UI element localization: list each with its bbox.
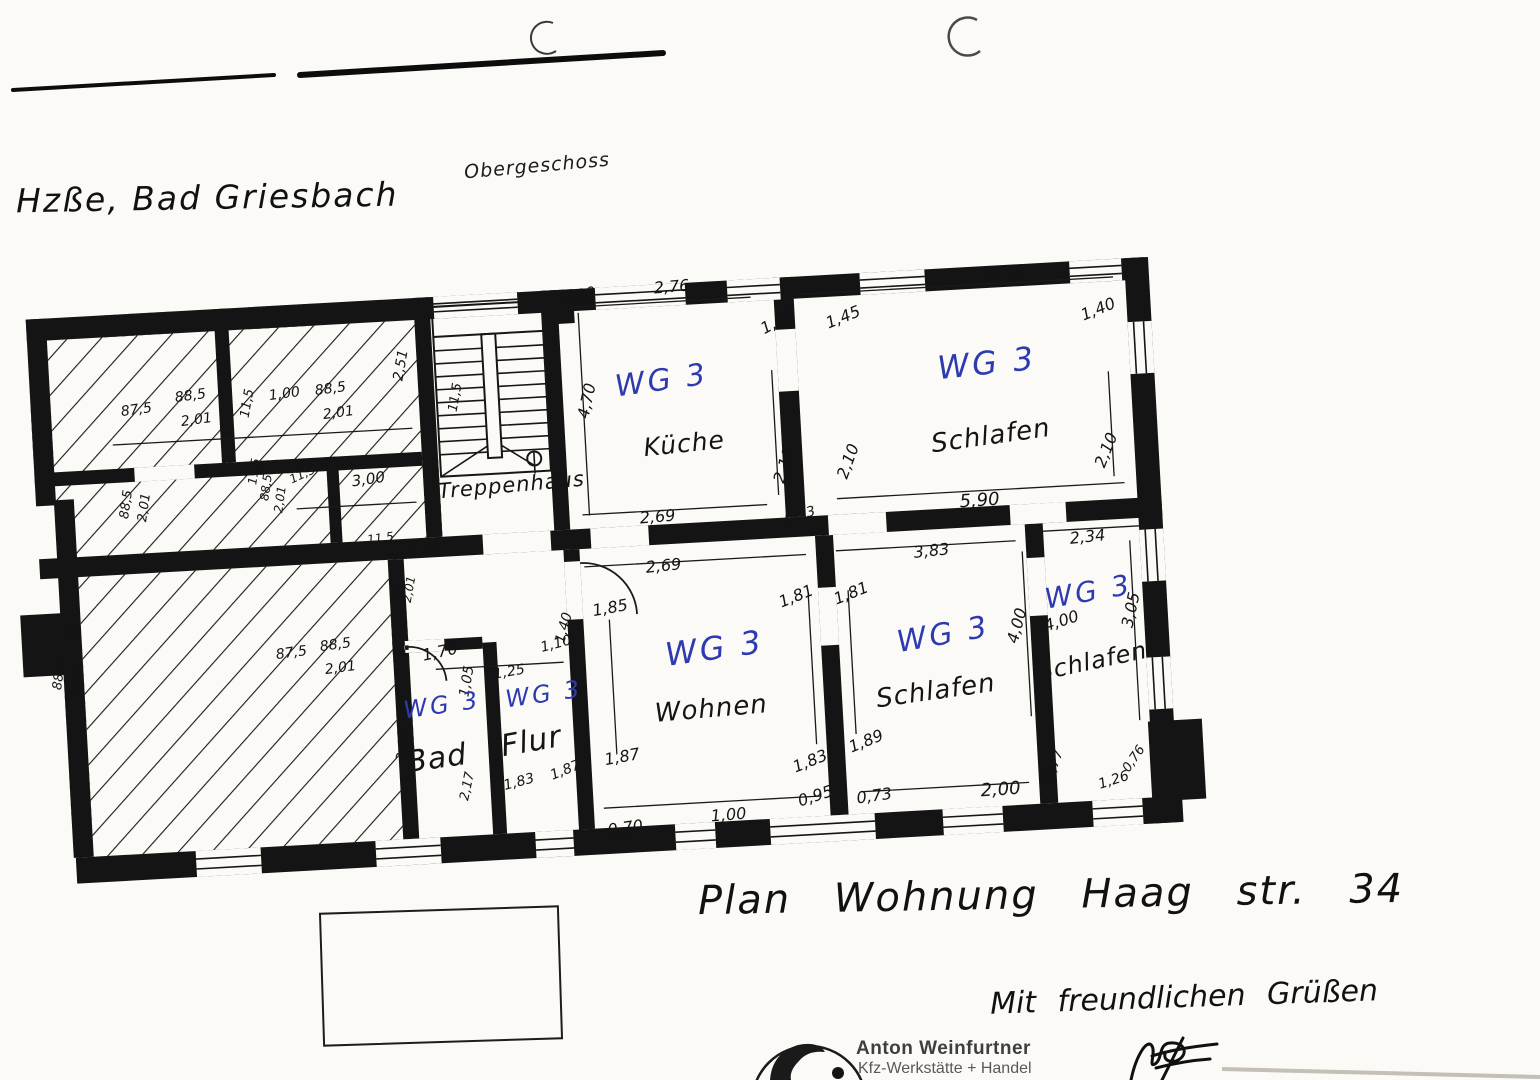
stamp-logo-icon	[752, 1044, 866, 1080]
signature	[1131, 1038, 1217, 1080]
page-edge-stroke	[300, 53, 663, 75]
dimension-label: 0,76	[1120, 743, 1149, 775]
punch-hole-icon	[531, 22, 556, 54]
dimension-label: 1,00	[710, 804, 747, 826]
stamp-company-line: Kfz-Werkstätte + Handel	[858, 1060, 1032, 1078]
dimension-label: 1,40	[1078, 293, 1118, 324]
dimension-label: 4,00	[1003, 606, 1031, 645]
dimension-label: 75	[68, 622, 85, 640]
dimension-label: 2,17	[457, 770, 478, 802]
dimension-label: 1,81	[831, 577, 871, 608]
page-edge-stroke	[13, 75, 274, 90]
room-name-label: Schlafen	[874, 668, 997, 714]
room-name-label: Schlafen	[929, 413, 1052, 459]
stamp-company-name: Anton Weinfurtner	[856, 1038, 1031, 1060]
dimension-label: 2,00	[980, 778, 1021, 802]
dimension-label: 4,40	[987, 261, 1024, 282]
dimension-label: 1,83	[502, 770, 536, 794]
dimension-label: 1,87	[603, 744, 642, 769]
wg-unit-label: WG 3	[894, 609, 992, 660]
dimension-label: 1,83	[790, 745, 830, 776]
wg-unit-label: WG 3	[504, 675, 584, 713]
room-name-label: Schlafen	[1035, 636, 1150, 687]
scan-shadow-line	[1222, 1069, 1540, 1077]
hatched-area	[47, 320, 427, 558]
dimension-label: 2,69	[639, 506, 676, 528]
wg-unit-label: WG 3	[613, 357, 711, 405]
dimension-label: 0,73	[855, 784, 893, 808]
wg-unit-label: WG 3	[936, 339, 1038, 387]
dimension-label: 1,81	[776, 580, 816, 611]
dimension-label: 1,89	[846, 725, 886, 756]
room-name-label: Küche	[642, 425, 726, 462]
dimension-label: 11,5	[446, 382, 466, 413]
wg-unit-label: WG 3	[402, 686, 482, 724]
dimension-label: 1,45	[823, 301, 863, 332]
dimension-label: 2,76	[653, 276, 690, 298]
wg-unit-label: WG 3	[663, 622, 766, 673]
dimension-label: 4,70	[574, 381, 600, 420]
sketch-rectangle	[320, 906, 562, 1045]
room-name-label: Bad	[404, 737, 469, 780]
dimension-label: 3,83	[913, 539, 950, 562]
room-name-label: Wohnen	[654, 689, 769, 729]
scanned-floorplan-page: 0,302,761,454,702,690,732,102,101,454,40…	[0, 0, 1540, 1080]
hatched-area	[78, 560, 403, 857]
dimension-label: 5,90	[959, 489, 1000, 513]
dimension-label: 0,95	[795, 781, 835, 810]
dimension-label: 2,10	[833, 441, 863, 481]
dimension-label: 2,34	[1069, 525, 1106, 548]
handwritten-location: Hzße, Bad Griesbach	[16, 175, 399, 221]
punch-hole-icon	[949, 18, 980, 56]
dimension-label: 2,69	[645, 554, 682, 577]
dimension-label: 2,10	[1090, 430, 1121, 470]
room-name-label: Flur	[498, 719, 565, 764]
dimension-label: 1,85	[591, 595, 629, 620]
